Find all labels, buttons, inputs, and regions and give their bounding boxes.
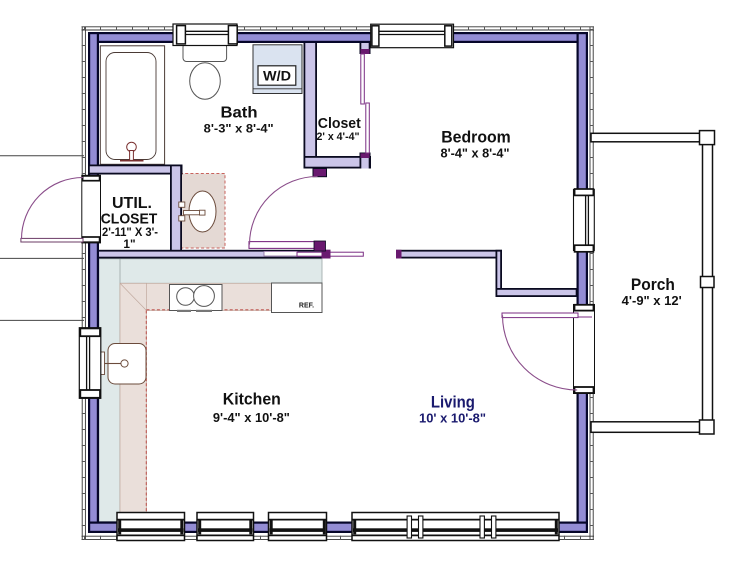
svg-text:2' x 4'-4": 2' x 4'-4" — [317, 131, 360, 143]
svg-text:9'-4" x 10'-8": 9'-4" x 10'-8" — [213, 411, 290, 425]
svg-text:Closet: Closet — [318, 116, 361, 132]
svg-text:10' x 10'-8": 10' x 10'-8" — [419, 411, 486, 425]
svg-text:Living: Living — [431, 393, 475, 411]
svg-text:4'-9" x 12': 4'-9" x 12' — [622, 294, 682, 308]
svg-text:REF.: REF. — [299, 303, 314, 310]
svg-text:Kitchen: Kitchen — [223, 391, 281, 409]
svg-text:Porch: Porch — [631, 276, 675, 294]
svg-text:UTIL.: UTIL. — [112, 195, 152, 212]
svg-text:Bedroom: Bedroom — [441, 129, 511, 147]
svg-text:W/D: W/D — [263, 69, 291, 84]
svg-text:8'-3" x 8'-4": 8'-3" x 8'-4" — [204, 122, 274, 136]
svg-text:1": 1" — [123, 237, 135, 251]
svg-text:8'-4" x 8'-4": 8'-4" x 8'-4" — [441, 147, 510, 161]
svg-text:Bath: Bath — [221, 105, 258, 122]
